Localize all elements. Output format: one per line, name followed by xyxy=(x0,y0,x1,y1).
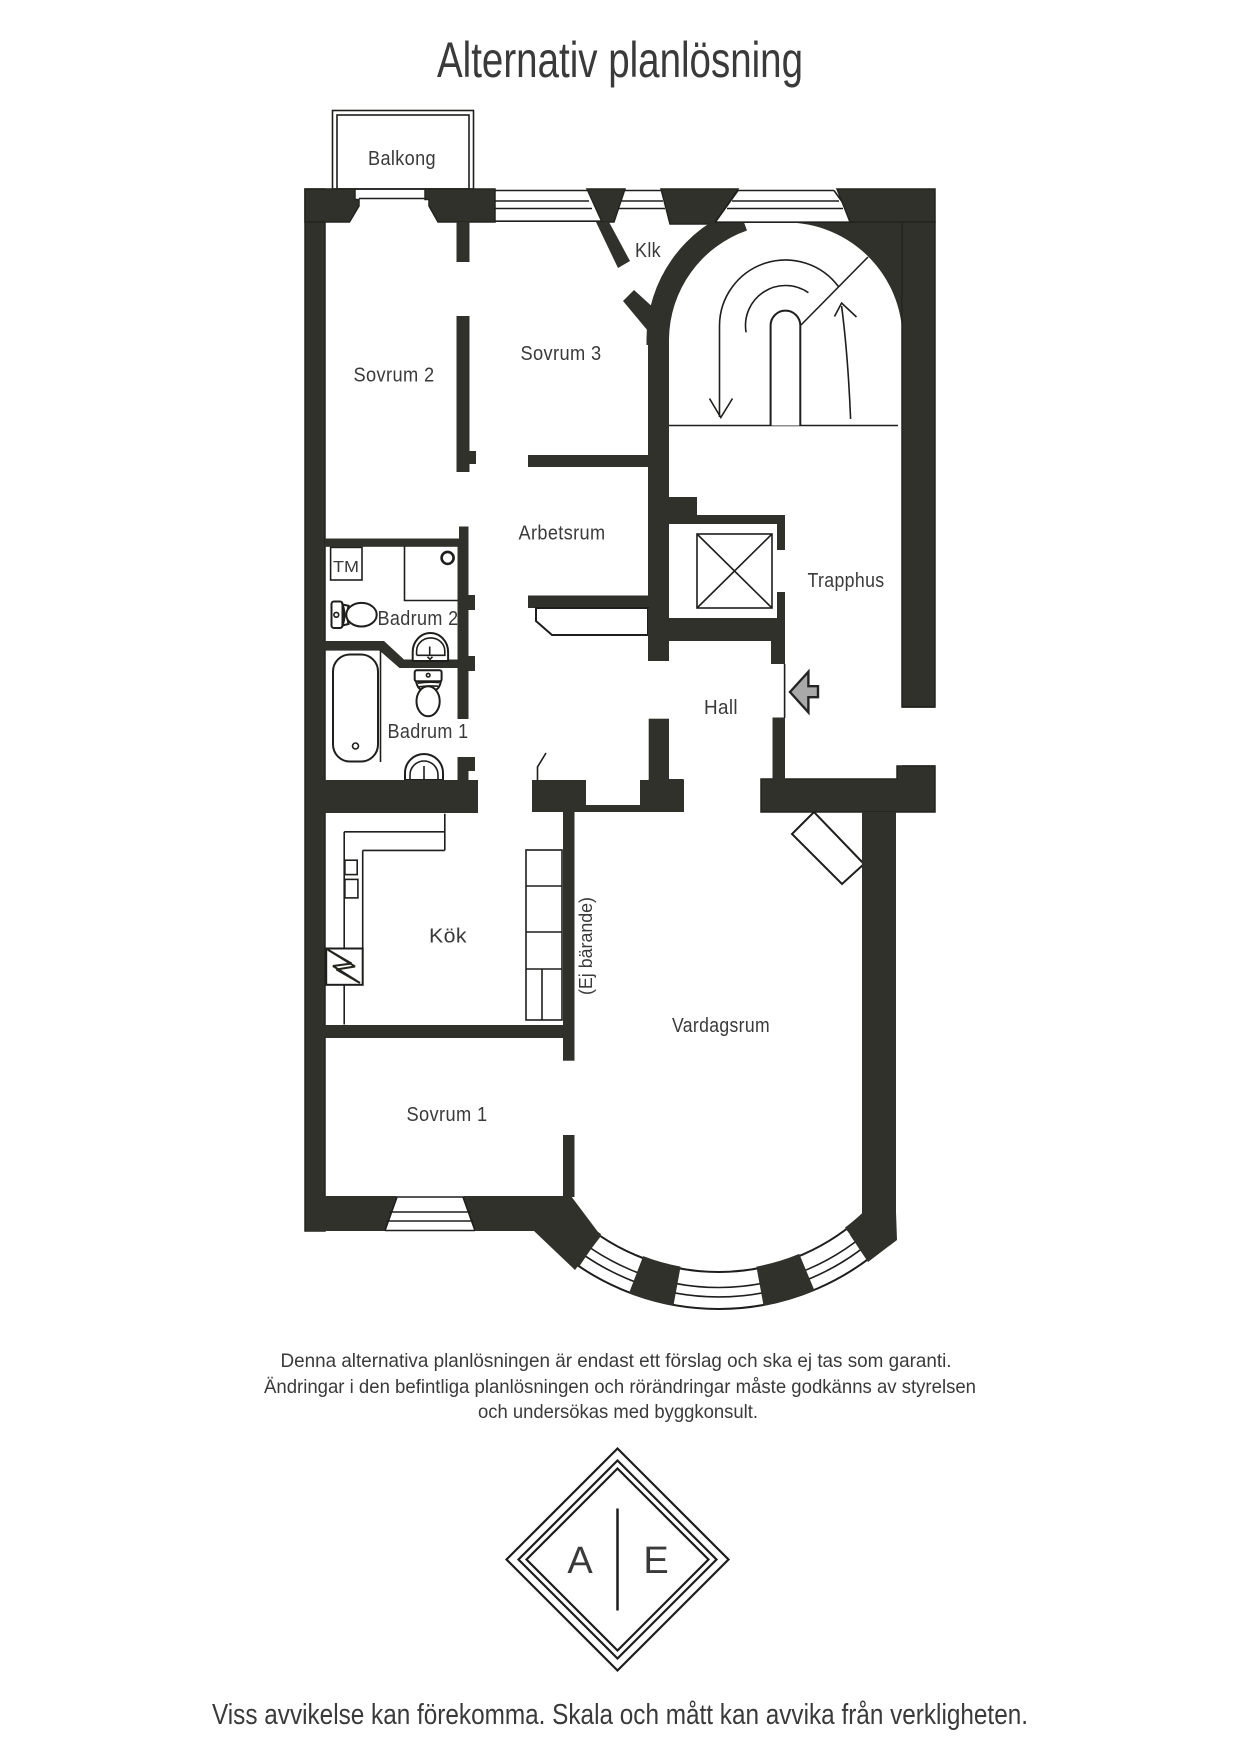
svg-text:och undersökas med byggkonsult: och undersökas med byggkonsult. xyxy=(478,1401,758,1423)
svg-text:Denna alternativa planlösninge: Denna alternativa planlösningen är endas… xyxy=(281,1350,952,1372)
svg-text:Sovrum 1: Sovrum 1 xyxy=(407,1104,488,1126)
svg-text:A: A xyxy=(567,1540,593,1582)
svg-text:(Ej bärande): (Ej bärande) xyxy=(576,897,596,995)
svg-text:TM: TM xyxy=(333,559,359,576)
svg-text:Balkong: Balkong xyxy=(368,148,436,170)
svg-text:Kök: Kök xyxy=(429,926,468,948)
svg-text:Hall: Hall xyxy=(704,697,738,719)
svg-text:Klk: Klk xyxy=(635,240,662,262)
svg-text:Ändringar i den befintliga pla: Ändringar i den befintliga planlösningen… xyxy=(264,1376,976,1398)
svg-text:Viss avvikelse kan förekomma.: Viss avvikelse kan förekomma. Skala och … xyxy=(212,1699,1028,1731)
svg-text:E: E xyxy=(643,1540,668,1582)
svg-text:Sovrum 3: Sovrum 3 xyxy=(521,343,602,365)
svg-text:Vardagsrum: Vardagsrum xyxy=(672,1015,770,1037)
svg-text:Badrum 1: Badrum 1 xyxy=(388,721,469,743)
svg-text:Alternativ planlösning: Alternativ planlösning xyxy=(437,32,803,88)
svg-text:Sovrum 2: Sovrum 2 xyxy=(354,365,435,387)
svg-text:Trapphus: Trapphus xyxy=(808,570,885,592)
svg-text:Arbetsrum: Arbetsrum xyxy=(519,523,606,545)
svg-text:Badrum 2: Badrum 2 xyxy=(378,608,459,630)
